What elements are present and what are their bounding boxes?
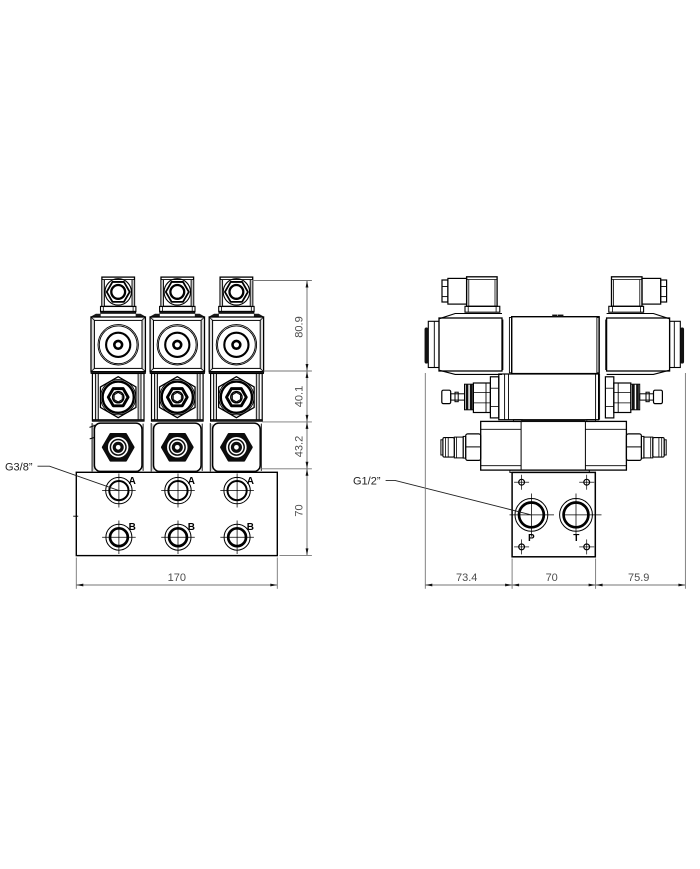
svg-text:80.9: 80.9 <box>293 316 305 337</box>
svg-text:G3/8”: G3/8” <box>5 461 33 473</box>
svg-text:73.4: 73.4 <box>456 572 477 584</box>
svg-text:T: T <box>573 533 579 544</box>
svg-text:B: B <box>188 522 195 533</box>
svg-text:43.2: 43.2 <box>293 436 305 457</box>
svg-text:B: B <box>129 522 136 533</box>
svg-text:A: A <box>129 476 136 487</box>
svg-text:A: A <box>247 476 254 487</box>
svg-text:70: 70 <box>293 504 305 516</box>
svg-text:170: 170 <box>168 572 186 584</box>
svg-text:B: B <box>247 522 254 533</box>
svg-text:40.1: 40.1 <box>293 386 305 407</box>
svg-text:70: 70 <box>546 572 558 584</box>
svg-text:A: A <box>188 476 195 487</box>
svg-text:75.9: 75.9 <box>628 572 649 584</box>
svg-text:P: P <box>528 533 535 544</box>
svg-text:G1/2”: G1/2” <box>353 475 381 487</box>
